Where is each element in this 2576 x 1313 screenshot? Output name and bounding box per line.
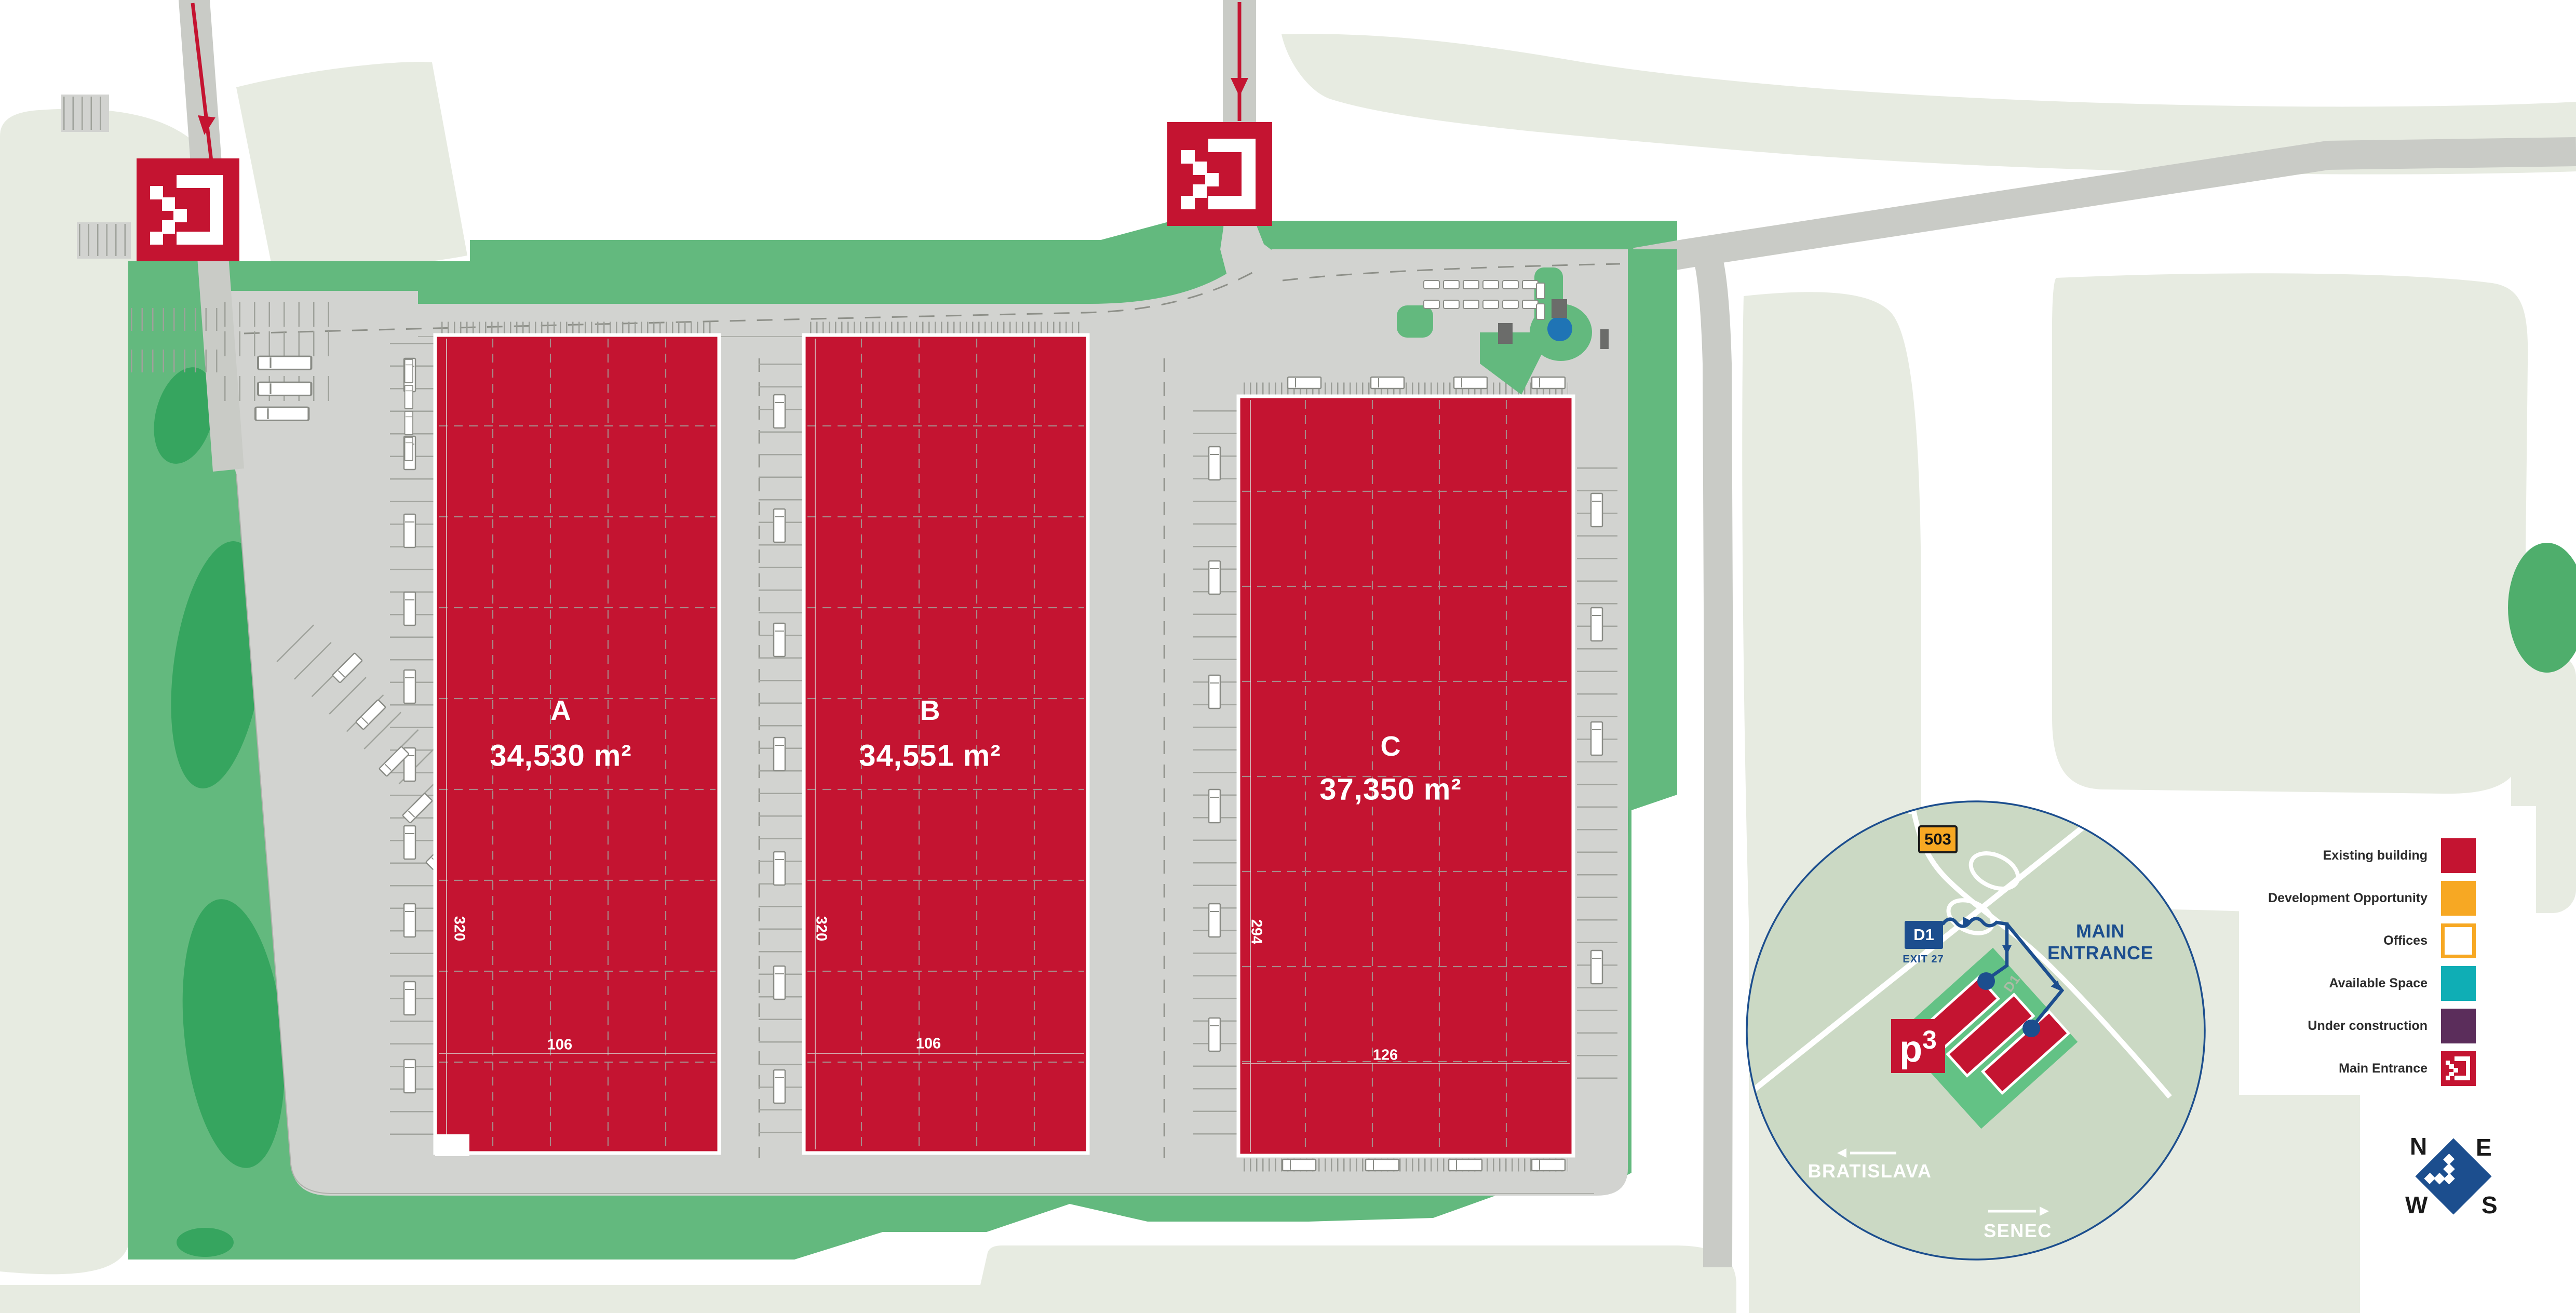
motorway-d1-shield: D1 [1905,921,1943,949]
building-c-letter: C [1381,730,1401,762]
main-entrance-label: MAIN ENTRANCE [2040,920,2161,964]
legend-label: Existing building [2323,848,2427,863]
legend-label: Development Opportunity [2268,891,2427,906]
building-b-dim-long: 320 [813,916,830,941]
route-503-shield: 503 [1918,825,1958,853]
location-inset-map [1739,793,2214,1268]
legend-row-available: Available Space [2239,962,2536,1004]
city-bratislava-label: BRATISLAVA [1792,1160,1948,1182]
existing-building-swatch [2441,838,2476,873]
city-senec-label: SENEC [1966,1220,2070,1242]
gate-dot-south [2022,1020,2040,1037]
legend-row-entrance: Main Entrance [2239,1047,2536,1090]
p3-logo: p3 [1891,1019,1945,1073]
p3-logo-p: p [1899,1030,1922,1068]
building-a-dim-long: 320 [451,916,468,941]
site-plan: A 34,530 m² B 34,551 m² C 37,350 m² 320 … [0,0,2576,1313]
main-entrance-icon-north [1167,122,1272,226]
compass-s: S [2481,1191,2498,1219]
legend-label: Available Space [2329,976,2427,991]
building-c-area: 37,350 m² [1319,772,1461,807]
compass-n: N [2410,1132,2427,1160]
legend-row-construction: Under construction [2239,1004,2536,1047]
p3-logo-3: 3 [1922,1027,1937,1053]
legend-row-existing: Existing building [2239,834,2536,877]
building-a-letter: A [551,694,571,727]
compass-e: E [2476,1133,2492,1161]
building-a-dim-short: 106 [547,1037,572,1054]
building-a-area: 34,530 m² [490,739,631,773]
main-entrance-legend-icon [2441,1051,2476,1086]
legend-panel: Existing building Development Opportunit… [2239,806,2536,1095]
legend-label: Offices [2383,933,2427,948]
building-b-dim-short: 106 [916,1036,941,1053]
pond [1547,316,1572,341]
offices-swatch [2441,923,2476,958]
legend-label: Main Entrance [2339,1061,2427,1076]
legend-row-development: Development Opportunity [2239,877,2536,919]
available-space-swatch [2441,966,2476,1001]
building-b-letter: B [920,694,940,727]
under-construction-swatch [2441,1009,2476,1043]
exit-27-label: EXIT 27 [1890,954,1957,966]
development-opportunity-swatch [2441,881,2476,916]
legend-label: Under construction [2308,1019,2427,1034]
compass-w: W [2405,1191,2427,1219]
motorway-d1-label: D1 [1913,926,1934,944]
building-c-dim-long: 294 [1248,919,1265,944]
main-entrance-icon-west [137,158,239,261]
gate-dot-north [1977,972,1995,990]
route-503-label: 503 [1924,830,1951,849]
building-c-dim-short: 126 [1373,1047,1398,1064]
legend-row-offices: Offices [2239,919,2536,962]
building-b-area: 34,551 m² [859,739,1001,773]
